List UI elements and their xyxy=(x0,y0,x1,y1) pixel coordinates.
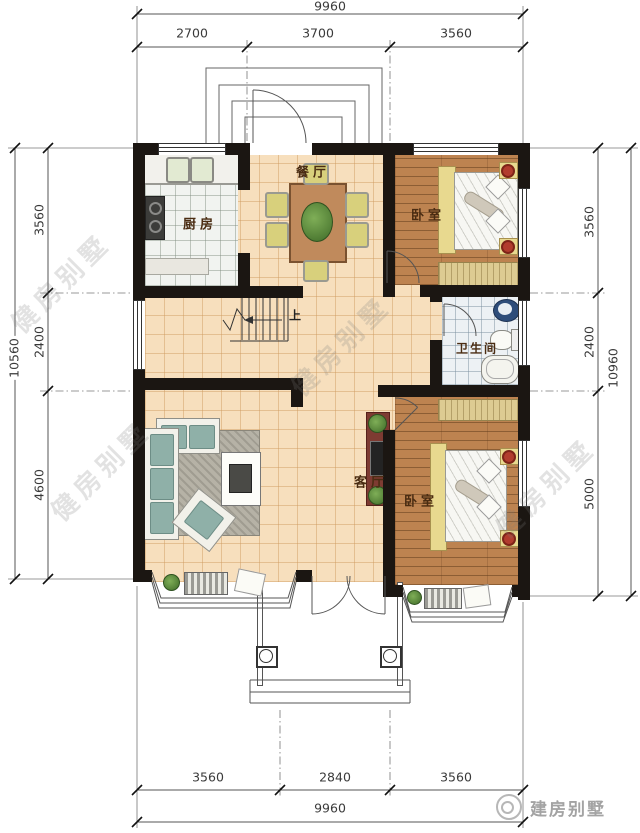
sofa-cushion xyxy=(150,468,174,500)
window xyxy=(413,143,499,155)
porch-rail xyxy=(397,582,403,686)
bathtub-inner xyxy=(486,359,514,379)
dim-top-seg-3: 3560 xyxy=(438,26,474,41)
dim-left-total: 10560 xyxy=(7,336,22,380)
kitchen-cabinet xyxy=(145,258,209,275)
dining-chair xyxy=(265,222,289,248)
wall xyxy=(238,253,250,290)
dim-bottom-seg-2: 2840 xyxy=(317,770,353,785)
dim-top-seg-2: 3700 xyxy=(300,26,336,41)
dim-right-seg-2: 2400 xyxy=(582,324,597,360)
wall xyxy=(395,585,403,597)
bay-plant xyxy=(163,574,180,591)
dim-right-seg-3: 5000 xyxy=(582,476,597,512)
dim-bottom-seg-1: 3560 xyxy=(190,770,226,785)
room-label-living: 客厅 xyxy=(354,472,388,491)
room-label-bathroom: 卫生间 xyxy=(456,340,498,357)
porch-column xyxy=(256,646,278,668)
wall xyxy=(133,368,145,582)
wall xyxy=(378,385,530,397)
stairs-up-label: 上 xyxy=(289,307,301,324)
entry-steps-top xyxy=(206,68,382,143)
wall xyxy=(296,570,312,582)
watermark-text: 健房别墅 xyxy=(2,224,119,341)
dim-left-seg-2: 2400 xyxy=(32,324,47,360)
dim-top-seg-1: 2700 xyxy=(174,26,210,41)
wall xyxy=(133,143,145,300)
kitchen-sink xyxy=(190,157,214,183)
bay-bench xyxy=(184,572,228,595)
bay-bench xyxy=(424,588,462,609)
dining-chair xyxy=(303,260,329,282)
dim-top-total: 9960 xyxy=(312,0,348,14)
dim-bottom-seg-3: 3560 xyxy=(438,770,474,785)
dim-left-seg-1: 3560 xyxy=(32,202,47,238)
wall xyxy=(312,143,413,155)
stove-burner xyxy=(149,202,162,215)
porch-steps xyxy=(250,680,410,703)
kitchen-sink xyxy=(166,157,190,183)
wall xyxy=(238,143,250,190)
porch-column xyxy=(380,646,402,668)
wall xyxy=(512,585,520,597)
wall xyxy=(430,297,442,302)
sofa-cushion xyxy=(150,434,174,466)
dining-chair xyxy=(265,192,289,218)
wall xyxy=(383,430,395,570)
logo-text: 建房别墅 xyxy=(530,795,606,820)
dining-chair xyxy=(345,222,369,248)
window xyxy=(518,188,530,258)
bedside-lamp xyxy=(501,164,515,178)
window xyxy=(518,440,530,507)
logo-icon xyxy=(496,794,522,820)
bay-cushion xyxy=(234,568,266,596)
coffee-table-decor xyxy=(229,464,252,493)
bath-sink-basin xyxy=(498,303,512,315)
bedside-lamp xyxy=(502,450,516,464)
window xyxy=(518,300,530,366)
armchair-cushion xyxy=(184,500,225,541)
sofa-cushion xyxy=(150,502,174,534)
wall xyxy=(133,286,303,298)
dim-bottom-total: 9960 xyxy=(312,801,348,816)
bedside-lamp xyxy=(501,240,515,254)
dim-right-total: 10960 xyxy=(606,346,621,390)
wall xyxy=(518,143,530,188)
wall xyxy=(383,570,395,597)
bay-plant xyxy=(407,590,422,605)
floor-plan-canvas: 厨房 餐厅 卧室 卫生间 客厅 卧室 上 9960 2700 3700 3560… xyxy=(0,0,640,833)
dim-left-seg-3: 4600 xyxy=(32,467,47,503)
wall xyxy=(420,285,530,297)
bedside-lamp xyxy=(502,532,516,546)
wall xyxy=(291,390,303,407)
room-label-bedroom-top: 卧室 xyxy=(411,205,445,224)
porch-rail xyxy=(257,582,263,686)
column-circle xyxy=(259,649,273,663)
stove-burner xyxy=(149,220,162,233)
logo-icon-inner xyxy=(501,801,514,814)
brand-logo: 建房别墅 xyxy=(496,794,606,820)
bay-cushion xyxy=(463,584,492,608)
column-circle xyxy=(383,649,397,663)
room-label-kitchen: 厨房 xyxy=(183,214,217,233)
wall xyxy=(133,570,152,582)
window xyxy=(133,300,145,370)
room-label-dining: 餐厅 xyxy=(296,162,330,181)
wall xyxy=(133,378,303,390)
sofa-cushion xyxy=(189,425,215,449)
wall xyxy=(518,364,530,440)
window xyxy=(158,143,226,155)
wall xyxy=(383,285,387,297)
dining-chair xyxy=(345,192,369,218)
table-plant xyxy=(301,202,333,242)
wardrobe xyxy=(438,262,520,286)
dim-right-seg-1: 3560 xyxy=(582,204,597,240)
wall xyxy=(383,143,395,297)
room-label-bedroom-bottom: 卧室 xyxy=(404,491,438,510)
wardrobe xyxy=(438,399,520,421)
